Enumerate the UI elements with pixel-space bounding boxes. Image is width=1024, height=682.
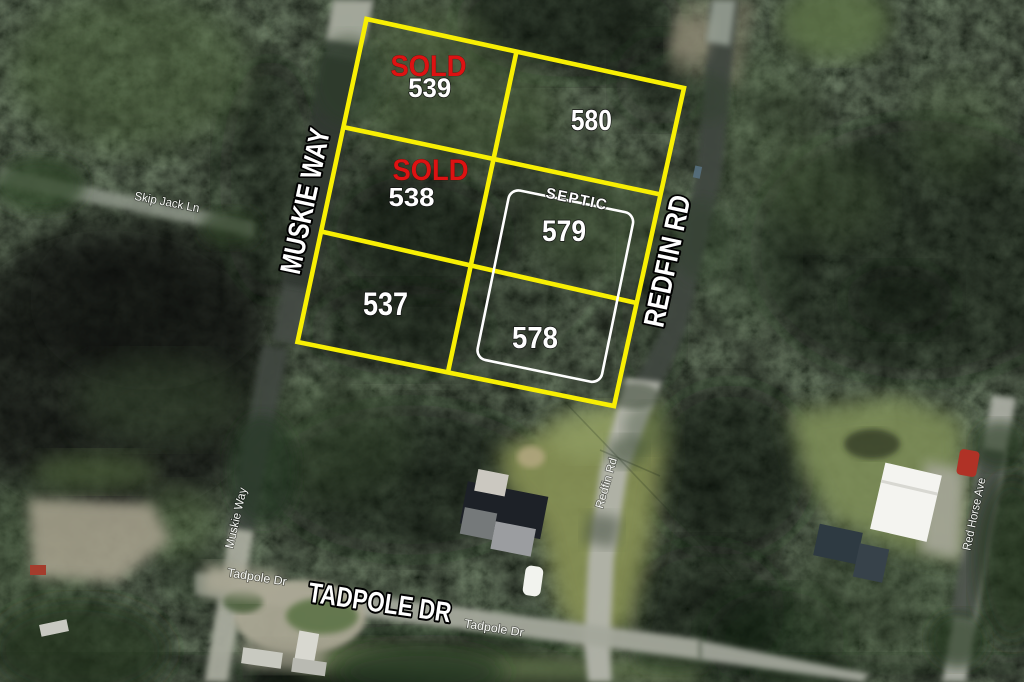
svg-text:578: 578 [512,320,558,355]
svg-text:580: 580 [571,105,612,137]
svg-text:539: 539 [408,73,451,103]
svg-text:537: 537 [363,286,408,322]
svg-text:538: 538 [389,182,435,212]
svg-text:579: 579 [542,215,586,248]
